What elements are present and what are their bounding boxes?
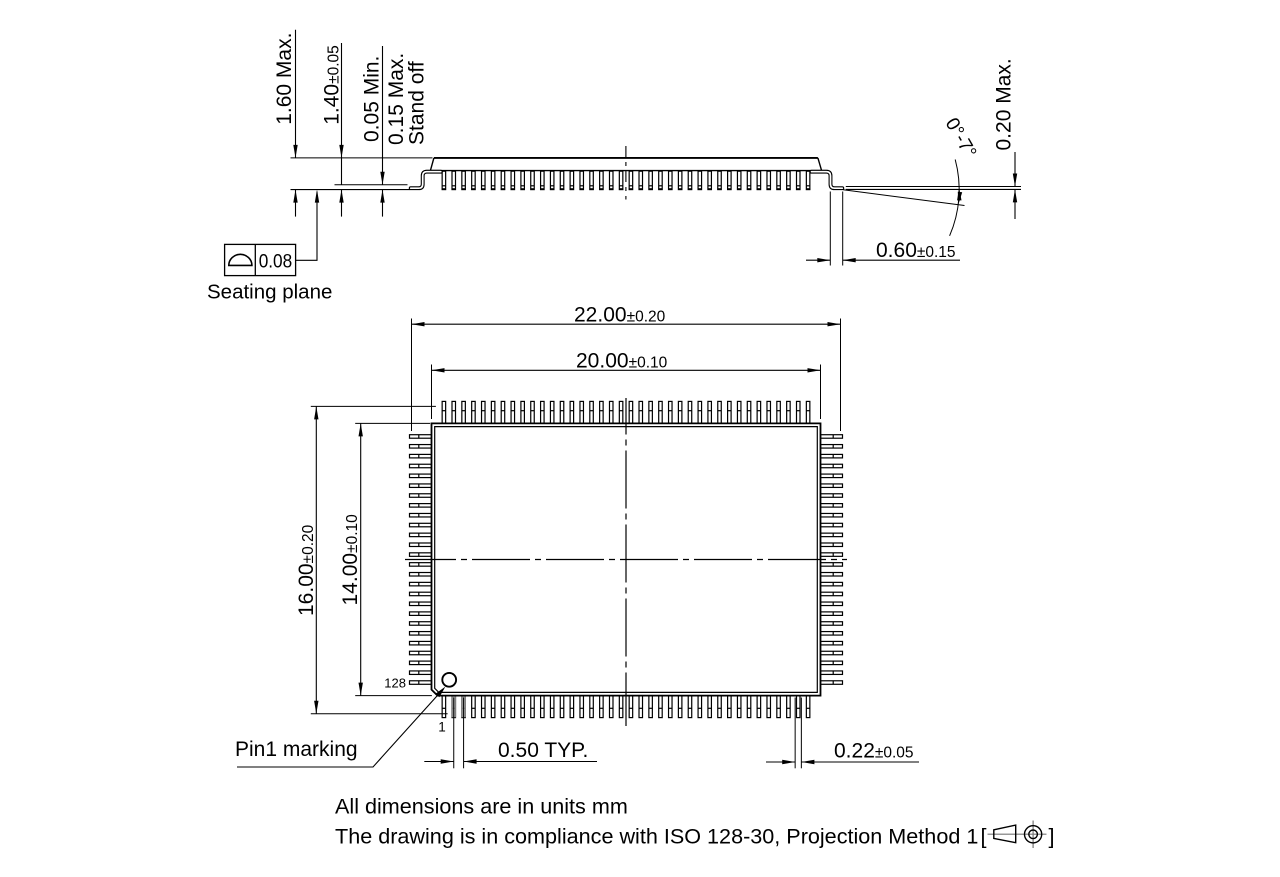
- svg-text:]: ]: [1049, 824, 1055, 849]
- svg-text:0.20 Max.: 0.20 Max.: [993, 58, 1016, 150]
- svg-text:Stand off: Stand off: [406, 61, 429, 145]
- svg-text:1: 1: [438, 720, 446, 735]
- svg-text:[: [: [981, 824, 987, 849]
- svg-text:All dimensions are in units mm: All dimensions are in units mm: [335, 794, 628, 819]
- svg-text:0.08: 0.08: [259, 251, 293, 273]
- svg-text:1.60 Max.: 1.60 Max.: [273, 33, 296, 125]
- svg-text:Seating plane: Seating plane: [207, 281, 332, 304]
- svg-text:0.50 TYP.: 0.50 TYP.: [498, 739, 588, 762]
- svg-text:128: 128: [384, 676, 406, 691]
- svg-text:0.05 Min.: 0.05 Min.: [361, 56, 384, 142]
- svg-text:The drawing is in compliance w: The drawing is in compliance with ISO 12…: [335, 824, 978, 849]
- svg-text:Pin1 marking: Pin1 marking: [235, 738, 358, 761]
